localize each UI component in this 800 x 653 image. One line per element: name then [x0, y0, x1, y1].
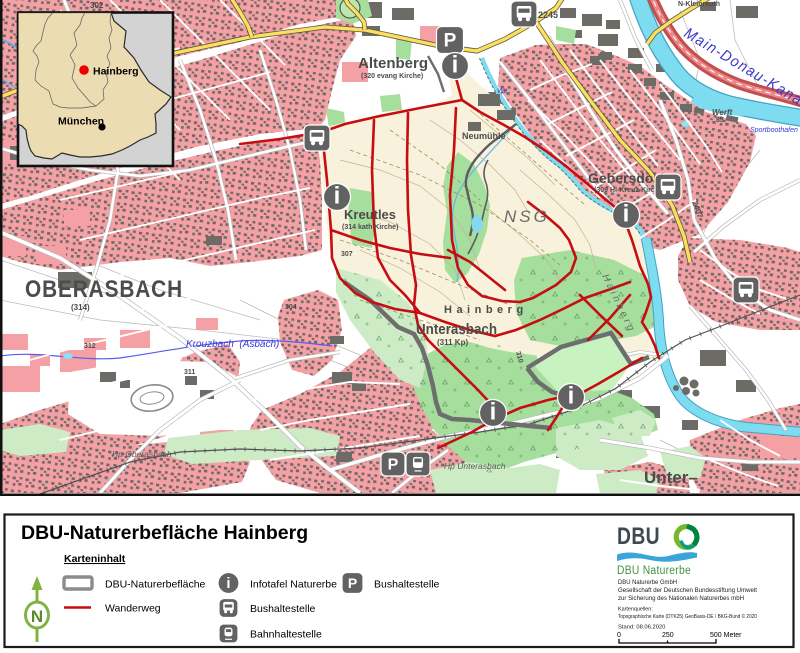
svg-text:Neumühle: Neumühle [462, 131, 506, 141]
svg-text:Bushaltestelle: Bushaltestelle [250, 603, 316, 615]
svg-text:(314 kath Kirche): (314 kath Kirche) [342, 224, 398, 231]
svg-text:i: i [226, 575, 230, 592]
svg-text:Bushaltestelle: Bushaltestelle [374, 579, 440, 591]
svg-text:zur Sicherung des Nationalen N: zur Sicherung des Nationalen Naturerbes … [618, 595, 744, 602]
svg-text:(314): (314) [71, 303, 90, 312]
svg-text:Gesellschaft der Deutschen Bun: Gesellschaft der Deutschen Bundesstiftun… [618, 587, 757, 594]
svg-text:P: P [348, 575, 357, 591]
svg-text:302: 302 [90, 1, 104, 10]
svg-text:Unterasbach: Unterasbach [416, 321, 497, 338]
svg-text:NSG: NSG [504, 207, 550, 226]
svg-text:Krouzbach (Asbach): Krouzbach (Asbach) [186, 339, 279, 350]
svg-text:311: 311 [184, 369, 195, 376]
svg-text:Bahnhaltestelle: Bahnhaltestelle [250, 629, 322, 641]
svg-text:Topographische Karte (DTK25) G: Topographische Karte (DTK25) GeoBasis-DE… [618, 613, 757, 620]
svg-text:Unter–: Unter– [644, 468, 698, 487]
svg-text:München: München [58, 116, 104, 128]
svg-text:P: P [388, 457, 399, 474]
svg-text:85: 85 [716, 117, 724, 124]
svg-text:vw: vw [497, 86, 508, 95]
svg-text:0: 0 [617, 632, 621, 639]
svg-text:Wanderweg: Wanderweg [105, 603, 161, 615]
svg-text:Karteninhalt: Karteninhalt [64, 553, 126, 565]
svg-text:Gebersdorf: Gebersdorf [588, 170, 664, 186]
svg-text:DBU Naturerbe GmbH: DBU Naturerbe GmbH [618, 579, 677, 586]
svg-text:312: 312 [84, 343, 96, 350]
svg-text:Kreutles: Kreutles [344, 207, 396, 222]
svg-text:P: P [444, 31, 457, 52]
svg-text:Hainberg: Hainberg [444, 304, 528, 316]
svg-text:i: i [490, 398, 497, 425]
svg-text:Kartenquellen:: Kartenquellen: [618, 607, 653, 613]
svg-text:307: 307 [341, 251, 353, 258]
svg-text:i: i [452, 51, 459, 78]
svg-text:DBU-Naturerbefläche: DBU-Naturerbefläche [105, 579, 206, 591]
svg-text:Infotafel Naturerbe: Infotafel Naturerbe [250, 579, 337, 591]
svg-text:i: i [334, 182, 341, 209]
svg-text:Werft: Werft [712, 108, 733, 117]
svg-text:(311 Kp): (311 Kp) [437, 338, 468, 347]
svg-text:(320 evang Kirche): (320 evang Kirche) [361, 73, 423, 80]
svg-text:DBU: DBU [617, 523, 660, 550]
svg-text:Hp Oberasbach: Hp Oberasbach [112, 449, 172, 459]
svg-text:500 Meter: 500 Meter [710, 632, 742, 639]
svg-text:DBU Naturerbe: DBU Naturerbe [617, 565, 691, 577]
svg-text:Sportboothafen: Sportboothafen [750, 127, 798, 134]
svg-text:Stand: 08.06.2020: Stand: 08.06.2020 [618, 625, 665, 631]
svg-text:i: i [568, 382, 575, 409]
svg-text:Altenberg: Altenberg [358, 55, 428, 72]
svg-text:i: i [623, 200, 630, 227]
svg-text:DBU-Naturerbefläche Hainberg: DBU-Naturerbefläche Hainberg [21, 522, 308, 544]
svg-text:Hp Unterasbach: Hp Unterasbach [444, 461, 506, 471]
svg-text:2245: 2245 [538, 10, 558, 20]
svg-text:Hainberg: Hainberg [93, 66, 139, 78]
svg-text:250: 250 [662, 632, 674, 639]
svg-text:304: 304 [285, 304, 297, 311]
svg-text:N-Kleinreuth: N-Kleinreuth [678, 1, 720, 8]
svg-text:N: N [31, 607, 43, 626]
svg-text:OBERASBACH: OBERASBACH [25, 276, 183, 303]
